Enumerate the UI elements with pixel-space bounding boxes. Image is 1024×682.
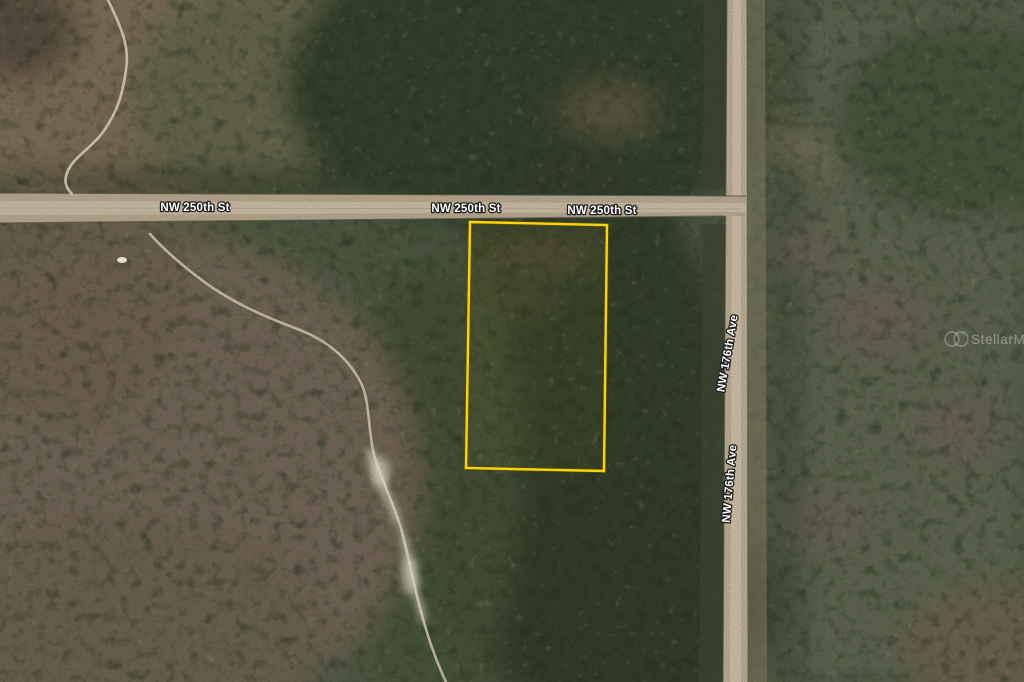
street-label-nw250th-2: NW 250th St — [431, 203, 500, 215]
map-canvas[interactable]: NW 250th St NW 250th St NW 250th St NW 1… — [0, 0, 1024, 682]
street-label-nw250th-1: NW 250th St — [160, 202, 229, 214]
parcel-overlay-group — [466, 222, 607, 471]
parcel-boundary — [466, 222, 607, 471]
satellite-map-view[interactable]: NW 250th St NW 250th St NW 250th St NW 1… — [0, 0, 1024, 682]
street-label-nw250th-3: NW 250th St — [567, 205, 636, 217]
watermark-text: StellarMLS — [971, 332, 1024, 347]
